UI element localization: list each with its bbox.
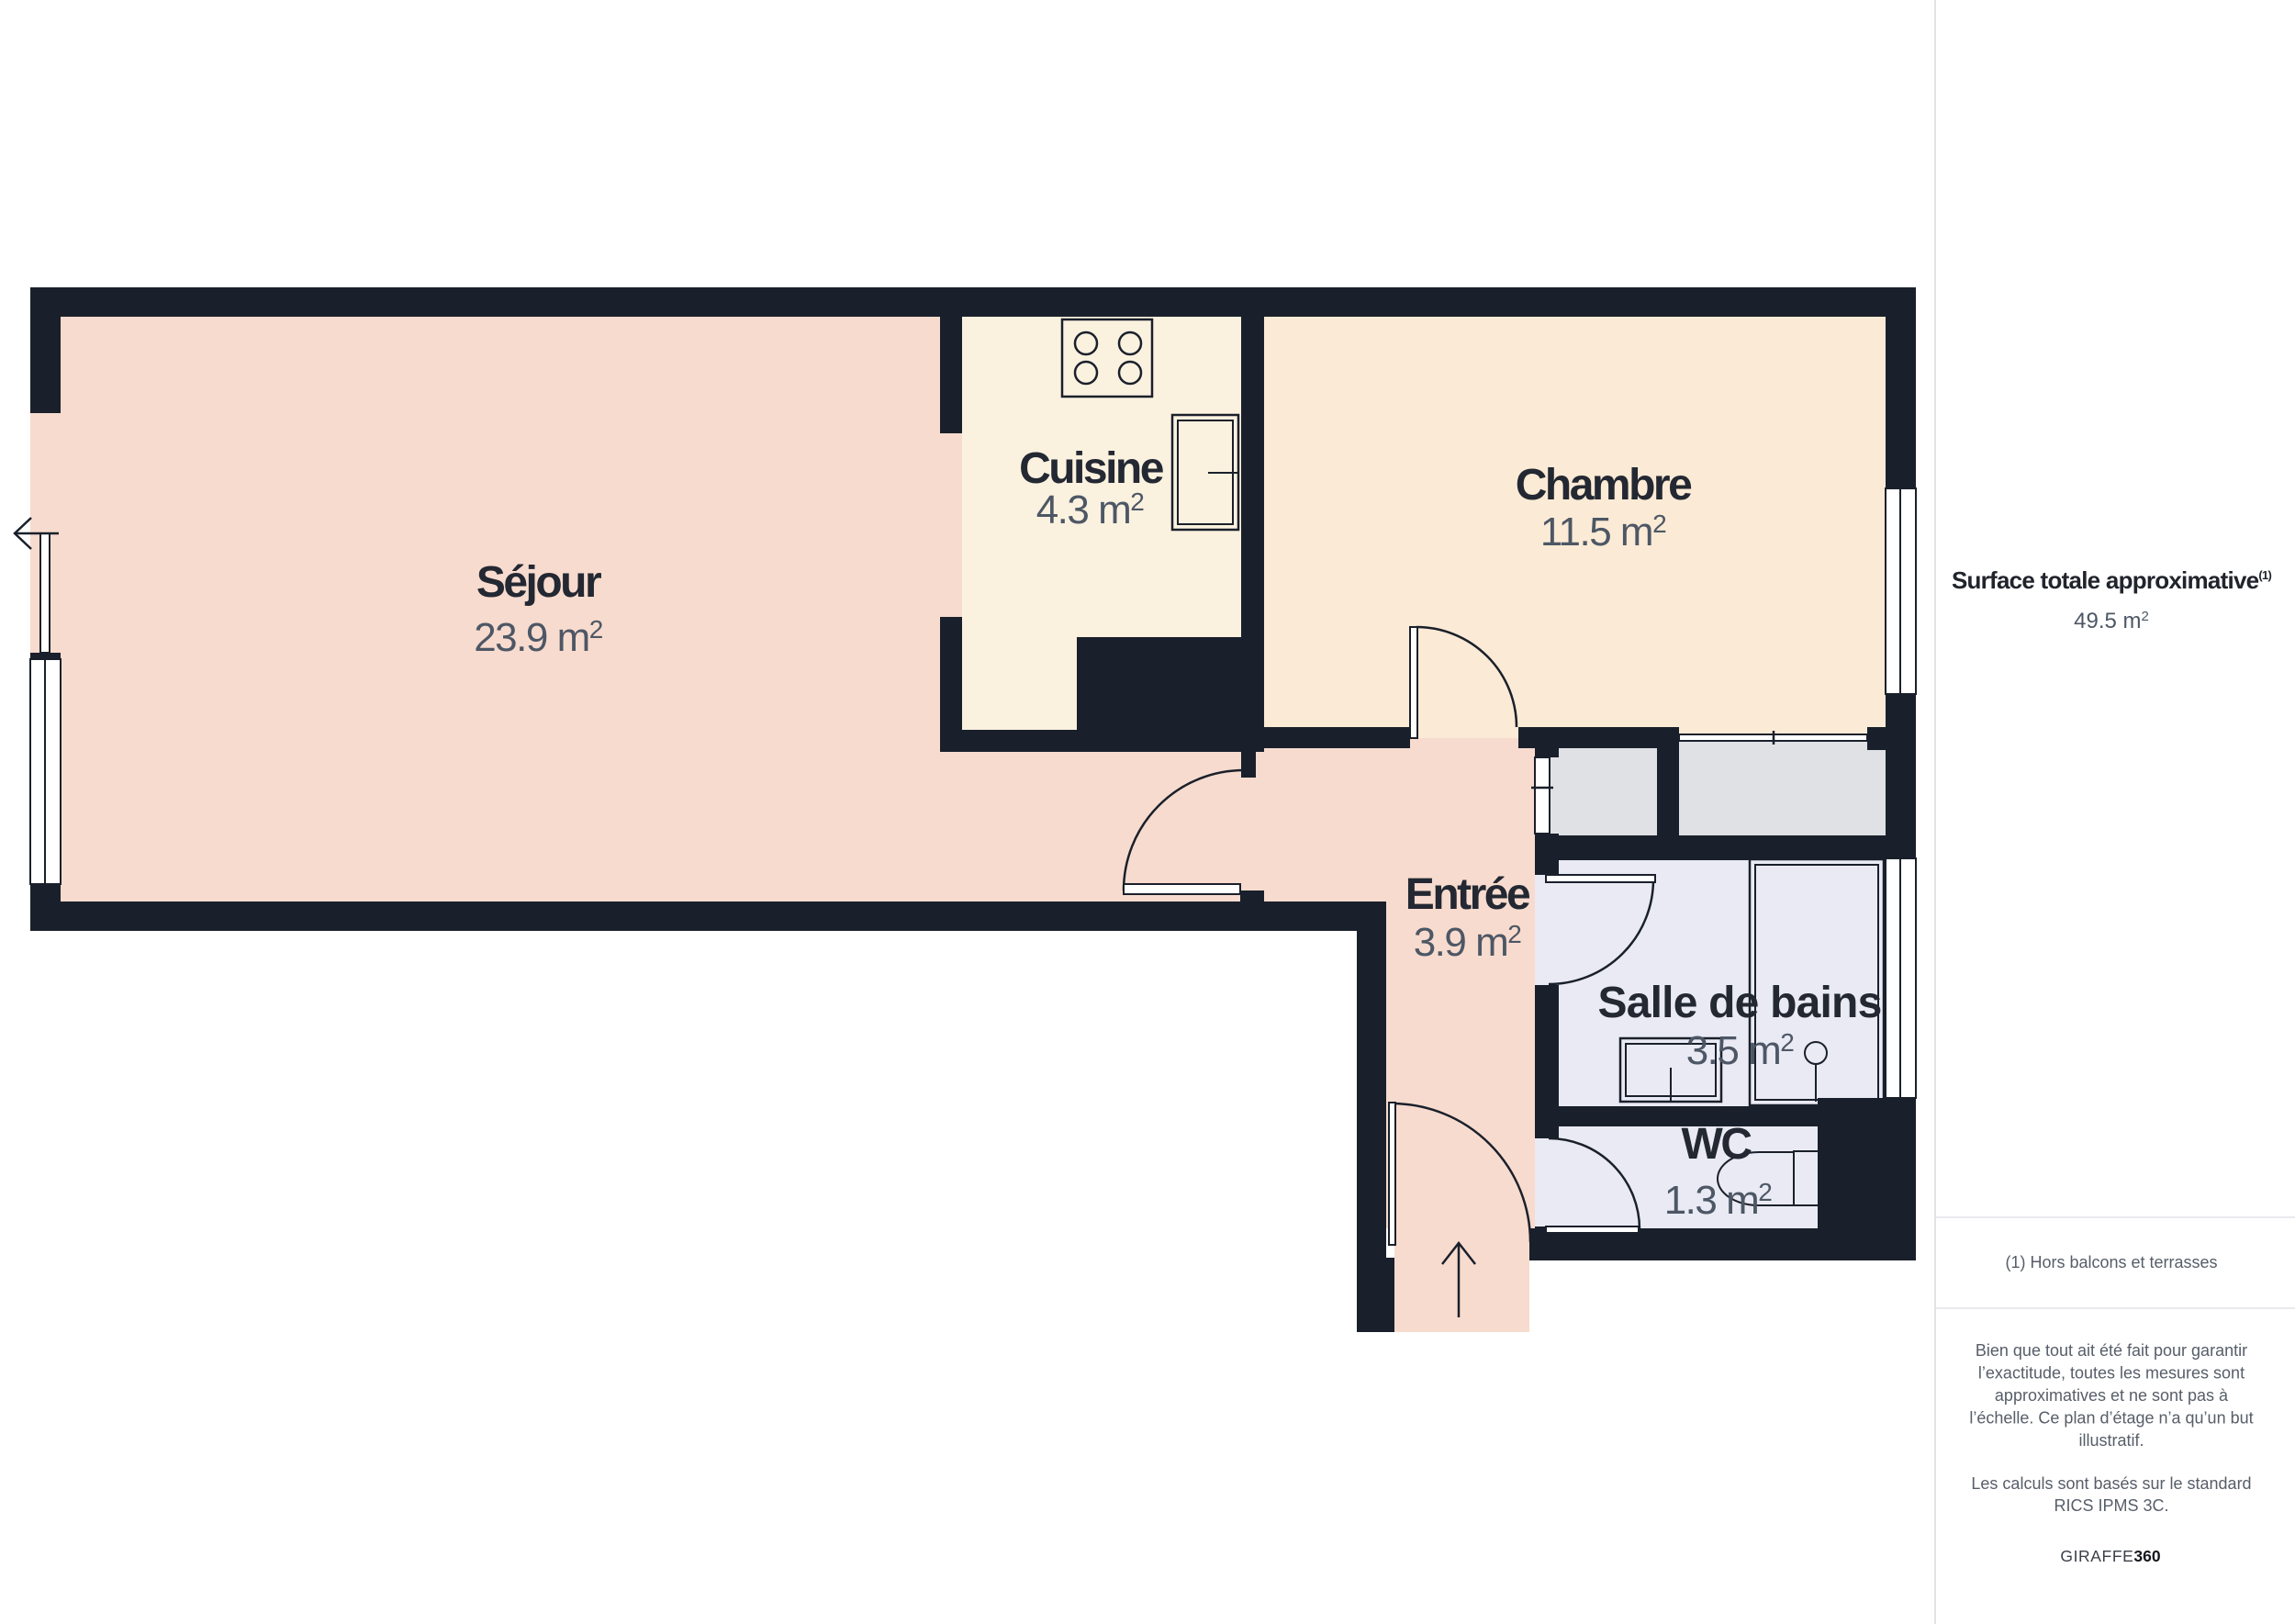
svg-text:WC: WC bbox=[1682, 1120, 1752, 1169]
svg-text:49.5 m2: 49.5 m2 bbox=[2074, 609, 2149, 633]
svg-text:l’échelle. Ce plan d’étage n’a: l’échelle. Ce plan d’étage n’a qu’un but bbox=[1969, 1409, 2253, 1428]
svg-text:3.9 m2: 3.9 m2 bbox=[1414, 920, 1522, 965]
svg-text:Salle de bains: Salle de bains bbox=[1598, 979, 1882, 1027]
svg-text:Surface totale approximative(1: Surface totale approximative(1) bbox=[1952, 566, 2272, 594]
svg-text:11.5 m2: 11.5 m2 bbox=[1540, 510, 1666, 554]
svg-text:l’exactitude, toutes les mesur: l’exactitude, toutes les mesures sont bbox=[1978, 1364, 2245, 1383]
svg-text:4.3 m2: 4.3 m2 bbox=[1036, 487, 1145, 532]
svg-text:Cuisine: Cuisine bbox=[1019, 444, 1164, 493]
svg-text:illustratif.: illustratif. bbox=[2078, 1431, 2144, 1450]
svg-text:(1) Hors balcons et terrasses: (1) Hors balcons et terrasses bbox=[2005, 1253, 2217, 1271]
svg-text:3.5 m2: 3.5 m2 bbox=[1686, 1028, 1795, 1073]
svg-text:Les calculs sont basés sur le: Les calculs sont basés sur le standard bbox=[1971, 1474, 2251, 1493]
svg-text:1.3 m2: 1.3 m2 bbox=[1664, 1178, 1773, 1223]
svg-text:Entrée: Entrée bbox=[1405, 870, 1530, 919]
svg-text:Bien que tout ait été fait pou: Bien que tout ait été fait pour garantir bbox=[1976, 1341, 2247, 1360]
svg-text:approximatives et ne sont pas: approximatives et ne sont pas à bbox=[1995, 1386, 2229, 1405]
svg-text:23.9 m2: 23.9 m2 bbox=[474, 615, 603, 660]
svg-text:Séjour: Séjour bbox=[476, 558, 601, 607]
svg-text:RICS IPMS 3C.: RICS IPMS 3C. bbox=[2054, 1496, 2168, 1515]
svg-text:GIRAFFE360: GIRAFFE360 bbox=[2060, 1547, 2161, 1565]
svg-text:Chambre: Chambre bbox=[1516, 461, 1692, 510]
